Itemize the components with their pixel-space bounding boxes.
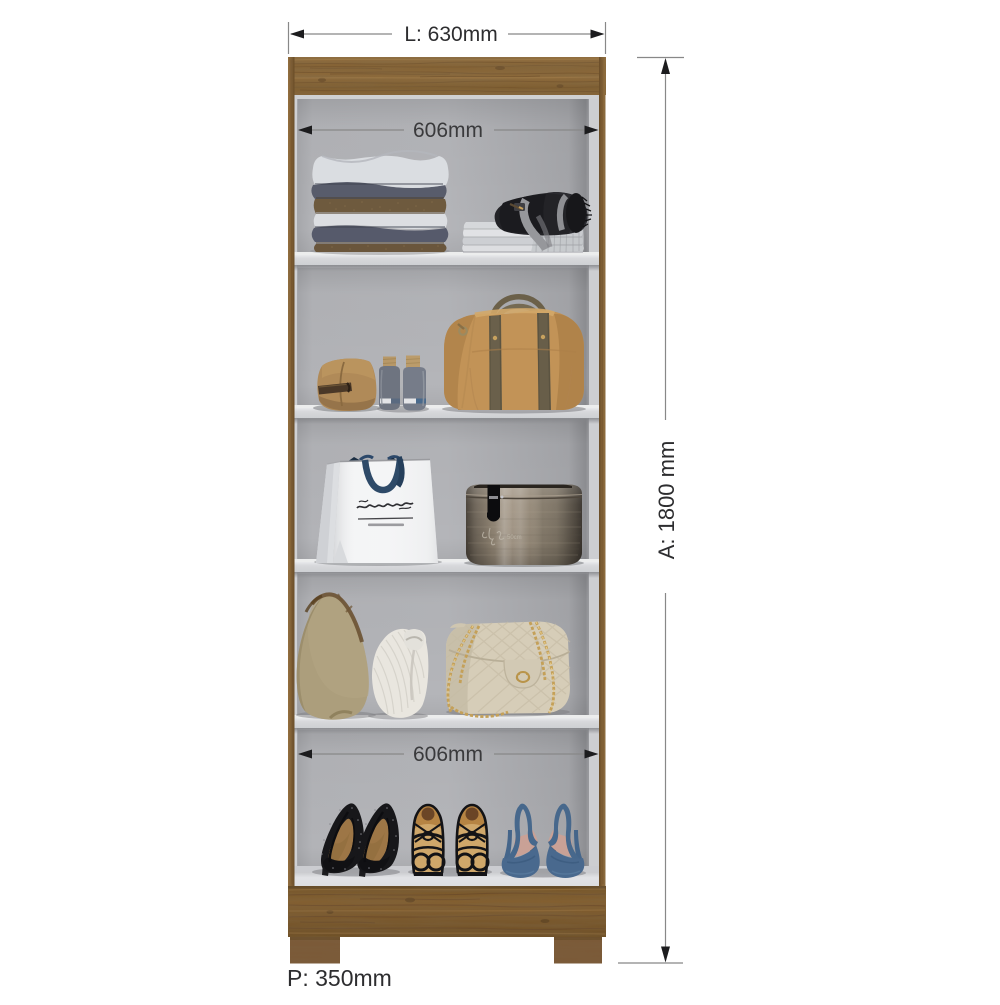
svg-text:A: 1800 mm: A: 1800 mm [654,441,679,560]
svg-text:606mm: 606mm [413,119,483,142]
svg-text:50cm: 50cm [507,535,522,541]
svg-text:L: 630mm: L: 630mm [404,23,497,46]
svg-text:P: 350mm: P: 350mm [287,965,392,991]
svg-text:606mm: 606mm [413,743,483,766]
